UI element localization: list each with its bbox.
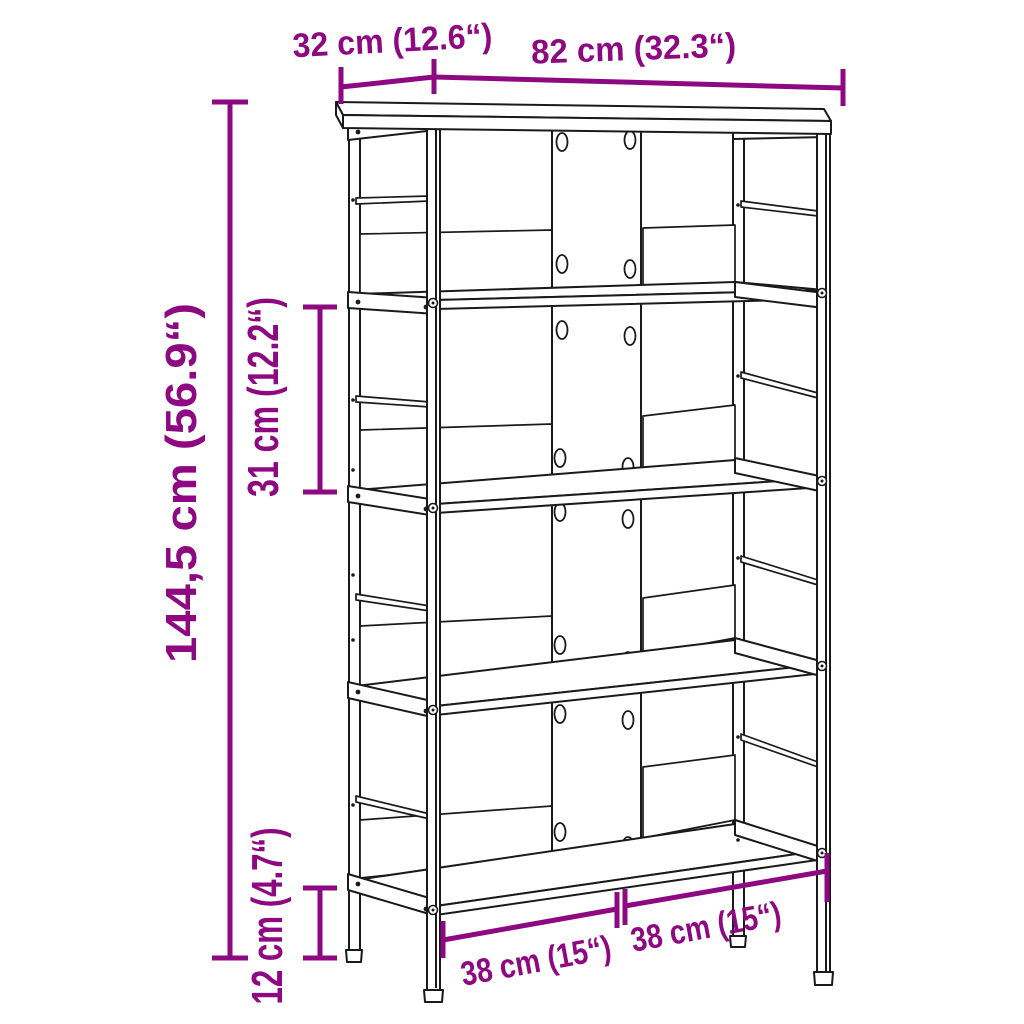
dimension-bottom-clearance-label: 12 cm (4.7“): [243, 828, 292, 1005]
leg-back-left: [349, 126, 360, 952]
dimension-bottom-clearance-line: [303, 888, 337, 958]
top-board: [336, 102, 831, 134]
diagram-canvas: 144,5 cm (56.9“) 31 cm (12.2“) 12 cm (4.…: [0, 0, 1024, 1024]
dimension-width-line: [434, 69, 843, 106]
dimension-depth-label: 32 cm (12.6“): [292, 17, 494, 65]
dimension-left-compartment-label: 38 cm (15“): [458, 929, 614, 994]
dimension-right-compartment-label: 38 cm (15“): [628, 895, 784, 960]
bookshelf-drawing: [336, 102, 833, 1002]
dimension-width-label: 82 cm (32.3“): [531, 26, 737, 71]
leg-front-left: [427, 118, 440, 990]
leg-front-right: [817, 126, 830, 974]
back-panels: [360, 225, 735, 878]
dimension-depth-line: [341, 59, 434, 104]
dimension-tier-height-line: [303, 307, 337, 492]
bookshelf-dimension-diagram: 144,5 cm (56.9“) 31 cm (12.2“) 12 cm (4.…: [0, 0, 1024, 1024]
dimension-tier-height-label: 31 cm (12.2“): [239, 297, 288, 497]
dimension-total-height-label: 144,5 cm (56.9“): [157, 303, 206, 663]
